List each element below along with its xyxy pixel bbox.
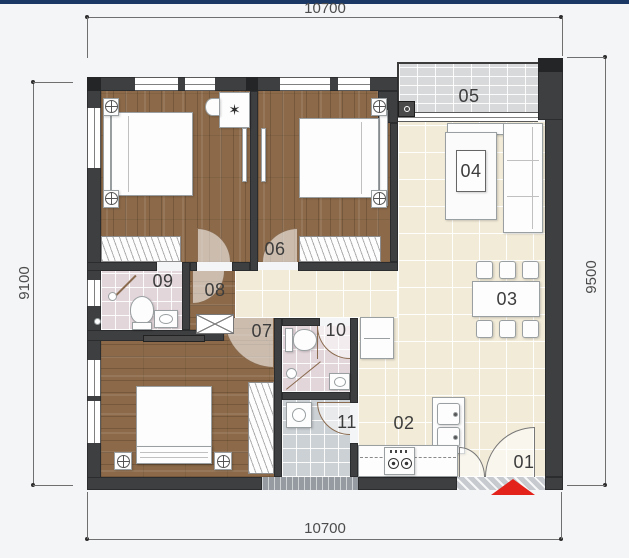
dining-chair — [522, 320, 539, 338]
dining-chair — [499, 320, 516, 338]
room-label-06: 06 — [260, 239, 290, 259]
wall-right — [545, 115, 563, 477]
wall-partition-bed1-bed2 — [250, 91, 258, 271]
bed3-tv-console — [143, 335, 205, 342]
bath09-toilet-tank — [132, 322, 152, 330]
hall-shoe-cabinet — [196, 314, 234, 334]
kitchen-sink-2 — [437, 427, 460, 447]
bath09-sink-basin — [159, 314, 173, 324]
stove-burner-icon — [388, 458, 399, 469]
lamp-icon — [373, 100, 386, 113]
bath10-sink — [329, 373, 350, 390]
dimension-bottom-line — [87, 539, 563, 540]
dim-extension — [87, 17, 88, 58]
floor-plan-canvas: 10700 10700 9100 9500 — [0, 0, 629, 558]
bed3-wardrobe — [248, 382, 274, 474]
room-label-02: 02 — [389, 413, 419, 433]
bed2-wardrobe — [299, 236, 381, 262]
dim-extension — [567, 485, 605, 486]
window-bed3-left-1 — [87, 360, 101, 396]
bed1-door-leaf — [197, 228, 198, 262]
bed2-mattress — [299, 118, 379, 198]
utility-washer-drum — [292, 408, 306, 422]
star-plant-icon: ✶ — [228, 101, 241, 119]
dim-extension — [87, 492, 88, 539]
kitchen-sink-1 — [437, 403, 460, 425]
dimension-top-line — [87, 17, 563, 18]
wall-cap — [87, 77, 101, 91]
wall-bath10-bottom — [282, 392, 350, 400]
room-label-11: 11 — [332, 412, 362, 432]
bed3-foot-line — [140, 457, 208, 458]
wall-cap — [538, 58, 563, 72]
sofa-cushion-line — [507, 196, 539, 197]
utility-door-leaf — [317, 402, 350, 403]
corridor-floor — [235, 270, 398, 318]
wall-bed2-bottom — [298, 262, 398, 271]
sofa-cushion-line — [507, 160, 539, 161]
bed1-pillow-line — [128, 116, 129, 192]
window-bed1-left — [87, 108, 101, 168]
lamp-icon — [373, 192, 386, 205]
window-bed2-top-1 — [280, 77, 330, 91]
bath09-toilet-bowl — [130, 296, 154, 324]
window-bed3-left-2 — [87, 401, 101, 443]
wall-bath09-right — [182, 262, 190, 330]
lamp-icon — [117, 455, 130, 468]
dimension-left: 9100 — [16, 238, 32, 328]
bath10-toilet-tank — [285, 328, 293, 352]
ac-fan-dot — [404, 106, 410, 112]
wall-utility-right-b — [350, 443, 358, 477]
dimension-left-line — [33, 82, 34, 485]
lamp-icon — [105, 100, 118, 113]
bed1-mattress — [111, 112, 193, 196]
dining-chair — [522, 261, 539, 279]
bath10-toilet-bowl — [293, 329, 317, 351]
room-label-08: 08 — [200, 280, 230, 300]
dimension-right: 9500 — [583, 232, 599, 322]
dim-extension — [562, 17, 563, 56]
sofa-main — [503, 123, 543, 233]
stove-burner-icon — [401, 458, 412, 469]
dimension-top: 10700 — [87, 0, 563, 17]
bath10-door-leaf — [317, 326, 318, 359]
bed1-wardrobe — [101, 236, 181, 262]
bed2-mirror — [261, 128, 266, 182]
window-bed1-top-1 — [135, 77, 178, 91]
wall-bath10-right-a — [350, 318, 358, 403]
bed1-mirror — [242, 128, 247, 182]
bed1-stool — [205, 98, 220, 116]
room-label-04: 04 — [460, 161, 481, 182]
wall-vertical-mid — [274, 318, 282, 477]
bed1-desk: ✶ — [219, 92, 250, 128]
dim-extension — [33, 82, 73, 83]
bath09-shower-head — [108, 292, 117, 301]
dining-chair — [476, 261, 493, 279]
dimension-right-line — [605, 57, 606, 485]
wall-cap — [246, 77, 258, 91]
wall-bed1-bottom-a — [87, 262, 157, 271]
dining-chair — [476, 320, 493, 338]
room-label-07: 07 — [247, 321, 277, 341]
sliding-door-balcony — [398, 112, 538, 122]
window-bed2-top-2 — [338, 77, 370, 91]
bath10-sink-basin — [334, 377, 346, 387]
wall-bed2-right — [390, 123, 398, 262]
sofa-back-line — [532, 127, 533, 229]
window-bath09-left — [87, 280, 101, 306]
wall-bath10-top — [282, 318, 320, 326]
coffee-table: 04 — [456, 150, 486, 192]
wall-bed1-bottom-c — [232, 262, 250, 271]
lamp-icon — [105, 192, 118, 205]
bath09-floor-drain — [94, 318, 101, 325]
dim-extension — [33, 485, 73, 486]
wall-bed1-bottom-b — [190, 262, 197, 271]
lamp-icon — [217, 455, 230, 468]
bath09-door-leaf — [192, 271, 193, 304]
fridge-divider — [364, 338, 390, 339]
dim-extension — [567, 57, 605, 58]
dining-chair — [499, 261, 516, 279]
entrance-arrow — [491, 479, 535, 495]
entry-door-leaf-small — [459, 447, 460, 477]
kitchen-fridge — [360, 317, 394, 359]
wall-bottom-a — [87, 477, 262, 490]
balcony-ac-unit — [398, 101, 415, 117]
dim-extension — [561, 492, 562, 539]
room-label-03: 03 — [492, 289, 522, 309]
stove-knobs — [390, 450, 410, 453]
faucet-dot — [453, 435, 458, 440]
wall-bottom-c — [545, 477, 563, 490]
window-bed1-top-2 — [185, 77, 215, 91]
dimension-bottom: 10700 — [87, 520, 563, 537]
room-label-01: 01 — [509, 452, 539, 472]
faucet-dot — [453, 412, 458, 417]
utility-washer — [286, 402, 312, 428]
bed3-foot-line — [140, 452, 208, 453]
bath10-shower-head — [286, 368, 297, 379]
room-label-10: 10 — [321, 320, 351, 340]
bath09-sink — [154, 310, 178, 328]
bed2-pillow-line — [361, 122, 362, 194]
room-label-05: 05 — [454, 86, 484, 106]
wall-bottom-vent — [262, 477, 358, 490]
wall-bottom-b — [358, 477, 457, 490]
room-label-09: 09 — [148, 271, 178, 291]
bed3-foot — [136, 446, 212, 464]
bed2-door-leaf — [297, 228, 298, 262]
